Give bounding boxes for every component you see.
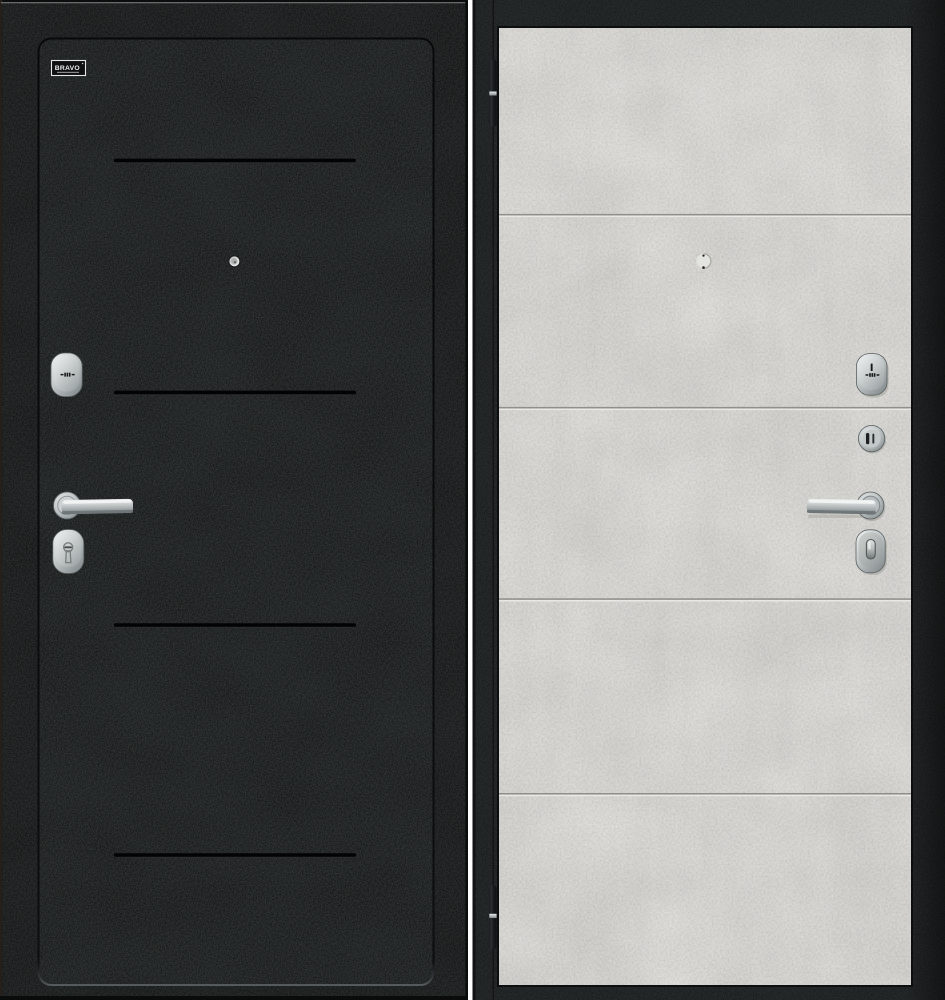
svg-text:BRAVO: BRAVO <box>55 65 80 72</box>
